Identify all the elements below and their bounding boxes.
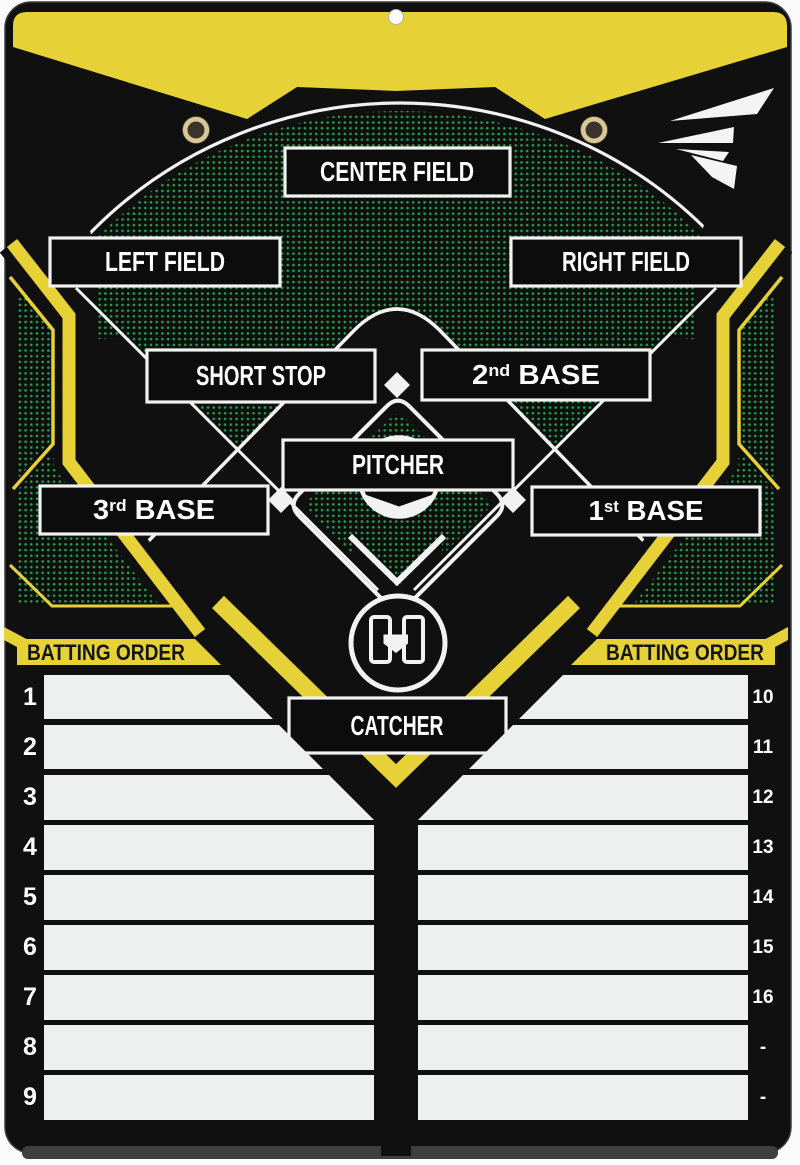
svg-text:14: 14: [752, 887, 774, 908]
svg-text:12: 12: [752, 787, 773, 808]
svg-text:16: 16: [752, 987, 773, 1008]
svg-text:SHORT STOP: SHORT STOP: [196, 360, 326, 391]
svg-text:-: -: [760, 1037, 766, 1058]
svg-text:13: 13: [752, 837, 773, 858]
svg-text:BATTING ORDER: BATTING ORDER: [27, 640, 185, 665]
svg-text:9: 9: [23, 1083, 37, 1111]
svg-text:-: -: [760, 1087, 766, 1108]
svg-text:8: 8: [23, 1033, 37, 1061]
svg-text:5: 5: [23, 883, 37, 911]
svg-text:15: 15: [752, 937, 774, 958]
svg-text:LEFT FIELD: LEFT FIELD: [105, 246, 225, 277]
svg-text:1: 1: [23, 683, 37, 711]
svg-text:11: 11: [753, 737, 774, 758]
svg-text:PITCHER: PITCHER: [352, 449, 444, 480]
svg-text:RIGHT FIELD: RIGHT FIELD: [562, 246, 690, 277]
svg-text:2: 2: [23, 733, 37, 761]
svg-text:4: 4: [23, 833, 37, 861]
svg-text:3: 3: [23, 783, 37, 811]
svg-text:CATCHER: CATCHER: [351, 710, 444, 741]
svg-text:7: 7: [23, 983, 37, 1011]
svg-text:6: 6: [23, 933, 37, 961]
svg-text:BATTING ORDER: BATTING ORDER: [606, 640, 764, 665]
svg-text:CENTER FIELD: CENTER FIELD: [320, 156, 474, 187]
svg-text:10: 10: [752, 687, 773, 708]
